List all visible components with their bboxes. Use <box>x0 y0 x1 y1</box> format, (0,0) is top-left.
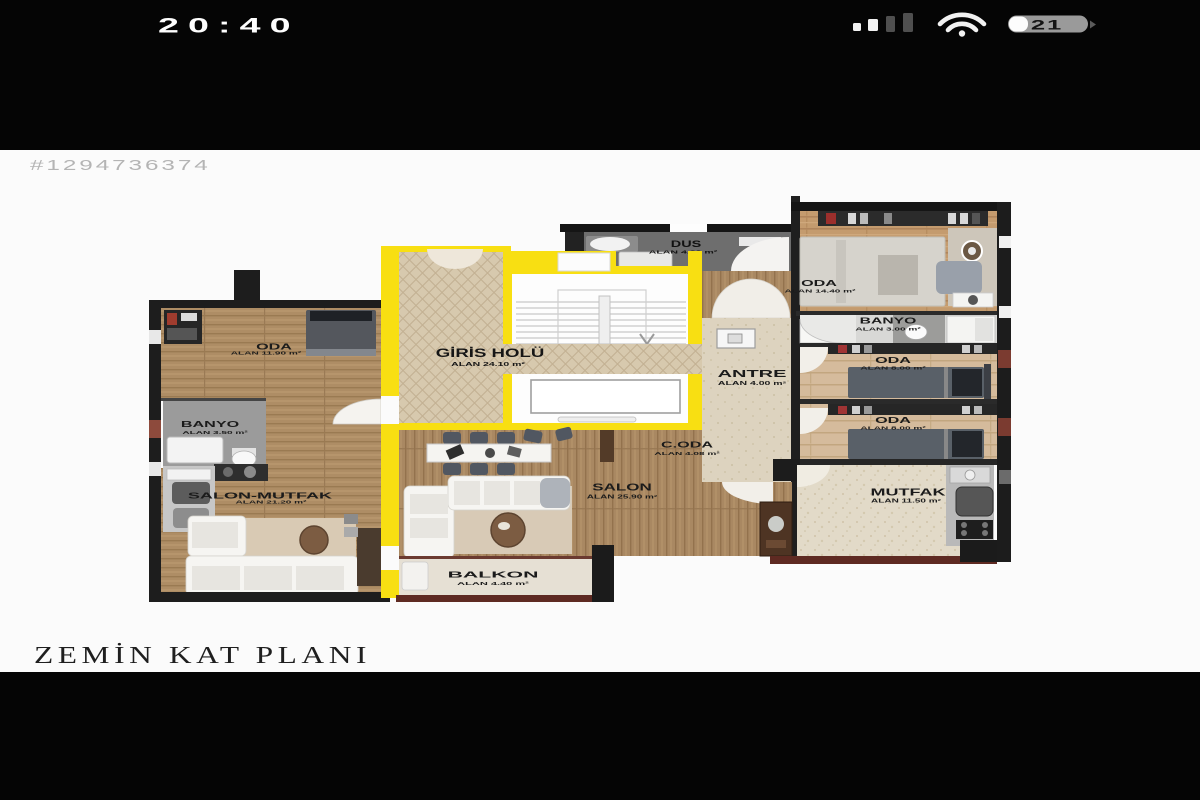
svg-text:C.ODA: C.ODA <box>661 440 713 450</box>
svg-text:ZEMİN KAT PLANI: ZEMİN KAT PLANI <box>34 642 371 669</box>
svg-text:ALAN 14.40 m²: ALAN 14.40 m² <box>785 288 856 293</box>
svg-text:20:40: 20:40 <box>158 14 300 38</box>
svg-text:BANYO: BANYO <box>860 316 917 325</box>
svg-text:ANTRE: ANTRE <box>718 369 787 380</box>
svg-text:ALAN 25.90 m²: ALAN 25.90 m² <box>587 494 658 500</box>
svg-text:ALAN 3.00 m²: ALAN 3.00 m² <box>855 326 921 331</box>
svg-text:ALAN 3.50 m²: ALAN 3.50 m² <box>182 430 248 435</box>
svg-text:ALAN 4.08 m²: ALAN 4.08 m² <box>654 451 720 456</box>
svg-text:ALAN 4.00 m²: ALAN 4.00 m² <box>718 381 787 386</box>
svg-text:SALON: SALON <box>592 481 651 492</box>
svg-text:ODA: ODA <box>875 355 911 365</box>
svg-text:ALAN 4.40 m²: ALAN 4.40 m² <box>457 580 529 586</box>
svg-text:ALAN 11.50 m²: ALAN 11.50 m² <box>871 498 941 504</box>
svg-text:ALAN 11.90 m²: ALAN 11.90 m² <box>231 350 302 355</box>
svg-text:BALKON: BALKON <box>448 570 539 579</box>
svg-text:BANYO: BANYO <box>181 419 239 429</box>
svg-text:ODA: ODA <box>875 415 911 425</box>
svg-text:GİRİS HOLÜ: GİRİS HOLÜ <box>436 347 545 360</box>
svg-text:ALAN 21.20 m²: ALAN 21.20 m² <box>236 499 307 504</box>
svg-text:DUS: DUS <box>671 239 701 249</box>
svg-text:ODA: ODA <box>801 278 837 288</box>
svg-text:ALAN 8.00 m²: ALAN 8.00 m² <box>860 365 926 370</box>
svg-text:ALAN 24.10 m²: ALAN 24.10 m² <box>451 361 525 368</box>
svg-text:ALAN 8.00 m²: ALAN 8.00 m² <box>860 425 926 430</box>
svg-text:MUTFAK: MUTFAK <box>871 487 947 498</box>
svg-text:ALAN 4.20 m²: ALAN 4.20 m² <box>649 249 718 254</box>
svg-text:#1294736374: #1294736374 <box>30 157 211 173</box>
svg-text:21: 21 <box>1031 18 1063 33</box>
